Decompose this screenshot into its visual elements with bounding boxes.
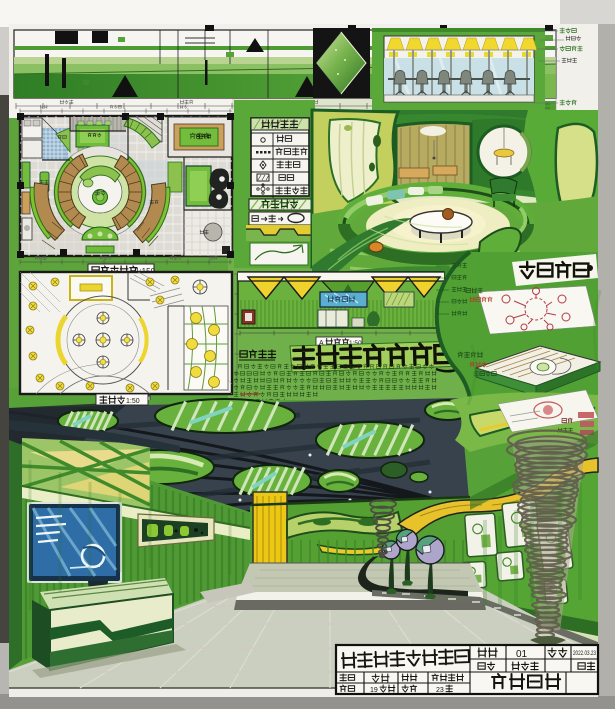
svg-text:23: 23 — [436, 687, 444, 694]
svg-text:19: 19 — [370, 687, 378, 694]
svg-text:1:50: 1:50 — [126, 398, 140, 405]
svg-text:2022.03.23: 2022.03.23 — [573, 650, 596, 657]
svg-text:01: 01 — [516, 649, 528, 660]
